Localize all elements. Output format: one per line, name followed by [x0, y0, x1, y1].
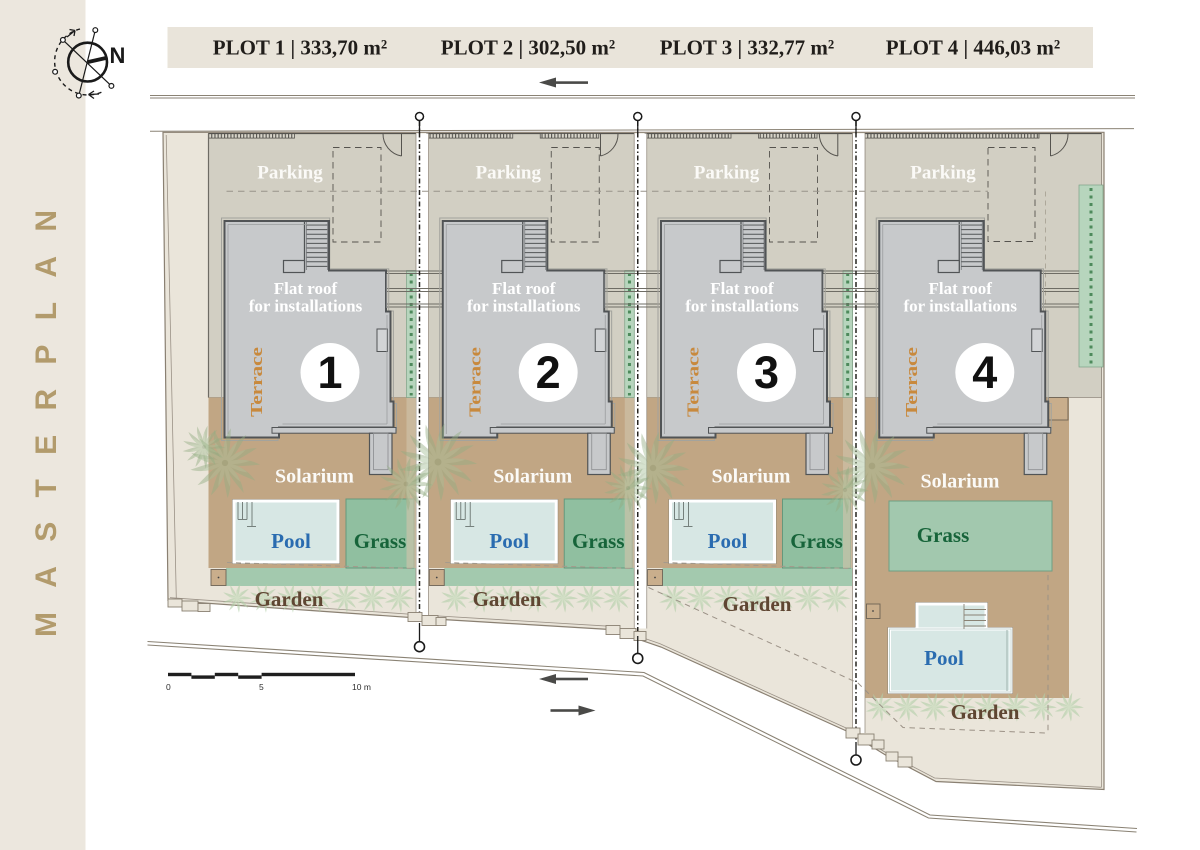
svg-text:Garden: Garden: [723, 592, 792, 616]
svg-text:PLOT 2 | 302,50 m²: PLOT 2 | 302,50 m²: [441, 36, 615, 60]
svg-text:Solarium: Solarium: [921, 471, 1000, 493]
svg-text:Solarium: Solarium: [493, 466, 572, 488]
svg-text:Parking: Parking: [910, 163, 976, 184]
svg-text:Grass: Grass: [917, 523, 970, 547]
svg-text:PLOT 4 | 446,03 m²: PLOT 4 | 446,03 m²: [886, 36, 1060, 60]
svg-text:PLOT 1 | 333,70 m²: PLOT 1 | 333,70 m²: [213, 36, 387, 60]
svg-text:Solarium: Solarium: [712, 466, 791, 488]
svg-text:5: 5: [259, 682, 264, 692]
svg-text:Pool: Pool: [924, 646, 964, 670]
svg-text:Solarium: Solarium: [275, 466, 354, 488]
svg-text:Garden: Garden: [951, 700, 1020, 724]
svg-text:4: 4: [972, 347, 997, 398]
svg-text:PLOT 3 | 332,77 m²: PLOT 3 | 332,77 m²: [660, 36, 834, 60]
svg-text:1: 1: [317, 347, 342, 398]
svg-text:N: N: [110, 43, 126, 68]
svg-text:Garden: Garden: [255, 587, 324, 611]
svg-text:3: 3: [754, 347, 779, 398]
svg-text:2: 2: [536, 347, 561, 398]
svg-text:10 m: 10 m: [352, 682, 371, 692]
svg-text:Garden: Garden: [473, 587, 542, 611]
svg-text:0: 0: [166, 682, 171, 692]
